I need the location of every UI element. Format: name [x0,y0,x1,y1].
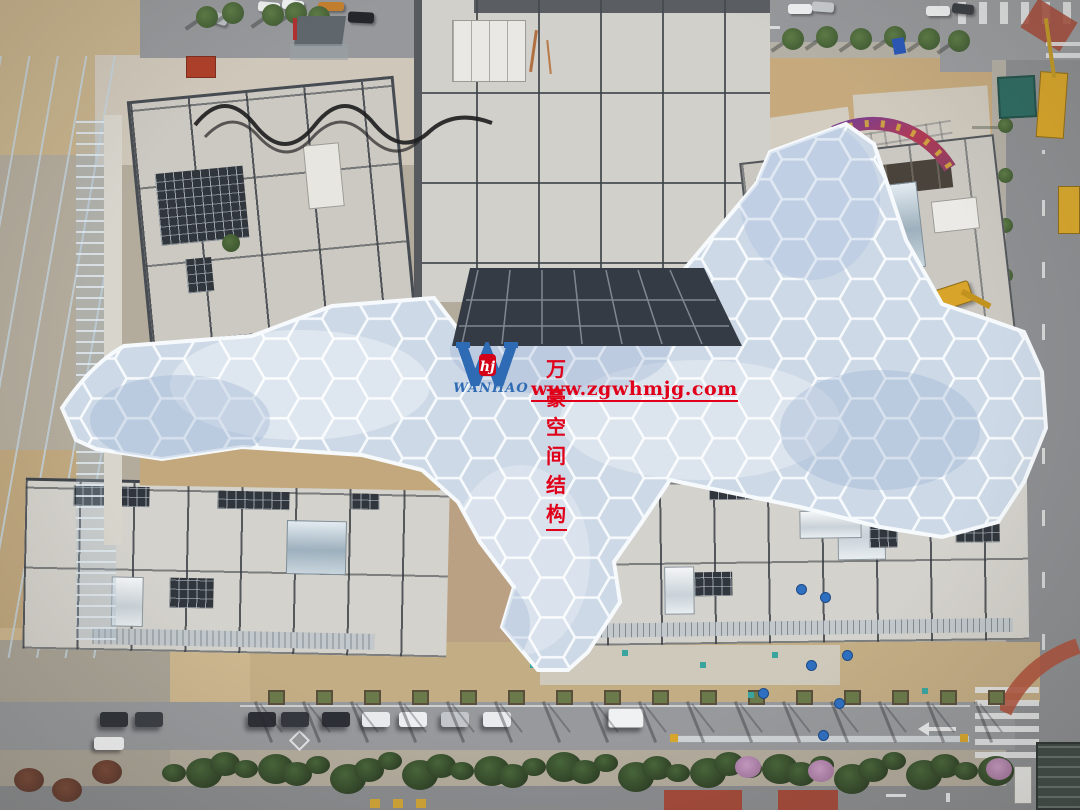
logo-seal-letters: hj [480,359,495,375]
wanhao-logo-icon: hj [454,342,526,386]
brand-latin-text: WANHAO [451,381,531,396]
skylight-glass-roof [452,268,742,346]
aerial-construction-photo: hj WANHAO 万豪空间结构 www.zgwhmjg.com [0,0,1080,810]
hexagonal-etfe-canopy [0,0,1080,810]
website-watermark: www.zgwhmjg.com [531,378,738,402]
